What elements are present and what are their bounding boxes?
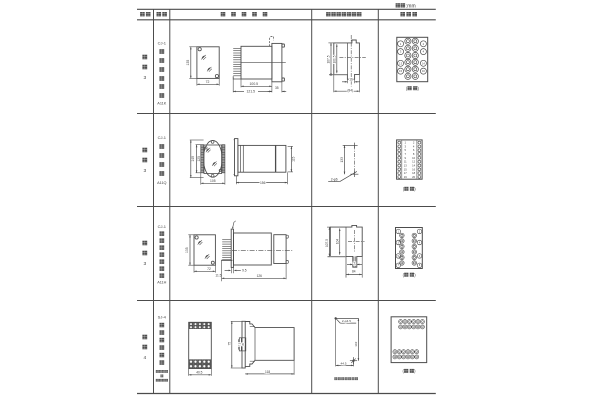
svg-text:A11K: A11K [157,102,166,106]
svg-text:44.5: 44.5 [340,361,346,365]
svg-text:14: 14 [412,164,415,168]
svg-text:118: 118 [265,370,270,374]
svg-text:3: 3 [143,168,146,174]
svg-text:15: 15 [404,167,407,171]
svg-text:126: 126 [257,274,263,278]
svg-text:72: 72 [207,267,211,271]
svg-text:149: 149 [191,156,195,162]
svg-text:75: 75 [228,342,232,346]
svg-text:A11Q: A11Q [157,181,166,185]
svg-text:84: 84 [352,270,356,274]
svg-text:3: 3 [143,75,146,81]
svg-text:20: 20 [412,175,415,179]
svg-text:19: 19 [404,175,407,179]
svg-text:35: 35 [275,86,279,90]
svg-text:102: 102 [354,341,358,346]
svg-text:13: 13 [404,164,407,168]
svg-text:107.5: 107.5 [326,55,330,63]
svg-text:10: 10 [412,156,415,160]
svg-text:CJ-1: CJ-1 [158,41,167,46]
svg-text:3: 3 [143,261,146,267]
svg-text:40.5: 40.5 [196,370,202,374]
svg-text:2-φ6: 2-φ6 [331,178,338,182]
svg-text:135: 135 [186,60,190,66]
svg-text::mm: :mm [406,3,416,9]
svg-text:133: 133 [340,157,344,163]
svg-text:CJ-1: CJ-1 [158,224,167,229]
svg-text:16: 16 [349,78,353,82]
svg-text:CJ-1: CJ-1 [158,135,167,140]
svg-text:16: 16 [412,167,415,171]
svg-text:101.5: 101.5 [333,55,337,63]
svg-text:A11H: A11H [157,280,166,284]
svg-text:100.5: 100.5 [250,82,259,86]
svg-text:104: 104 [335,239,339,245]
svg-text:2-φ4.5: 2-φ4.5 [342,319,351,323]
svg-text:156: 156 [260,181,266,185]
svg-text:11.5: 11.5 [215,273,221,277]
svg-text:11: 11 [404,160,407,164]
svg-text:72: 72 [206,80,210,84]
svg-text:121.5: 121.5 [247,90,256,94]
svg-text:4: 4 [143,355,146,361]
svg-text:135: 135 [185,247,189,253]
svg-text:12: 12 [412,160,415,164]
svg-text:125: 125 [197,156,201,162]
svg-text:107.5: 107.5 [325,239,329,247]
svg-text:17: 17 [404,171,407,175]
svg-text:115: 115 [291,157,295,162]
svg-text:(84): (84) [347,89,353,93]
svg-text:105: 105 [210,179,216,183]
svg-text:SJ-4: SJ-4 [158,315,167,320]
svg-text:14: 14 [353,262,357,266]
svg-text:9.5: 9.5 [242,269,247,273]
svg-text:18: 18 [412,171,415,175]
